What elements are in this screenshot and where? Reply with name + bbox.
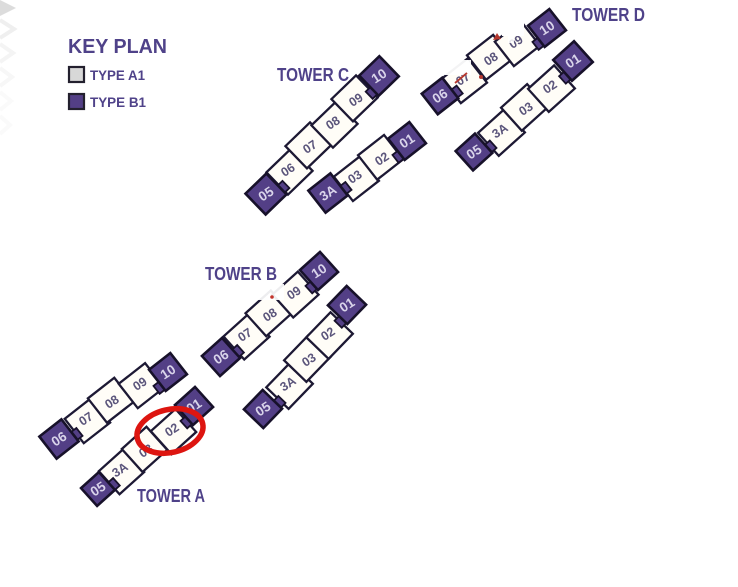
- svg-text:TOWER A: TOWER A: [137, 486, 205, 506]
- svg-text:TOWER D: TOWER D: [572, 5, 645, 25]
- svg-text:TYPE B1: TYPE B1: [90, 95, 146, 110]
- svg-text:TOWER C: TOWER C: [277, 65, 349, 85]
- svg-text:TOWER B: TOWER B: [205, 264, 277, 284]
- svg-text:TYPE A1: TYPE A1: [90, 68, 145, 83]
- svg-text:KEY PLAN: KEY PLAN: [68, 35, 167, 58]
